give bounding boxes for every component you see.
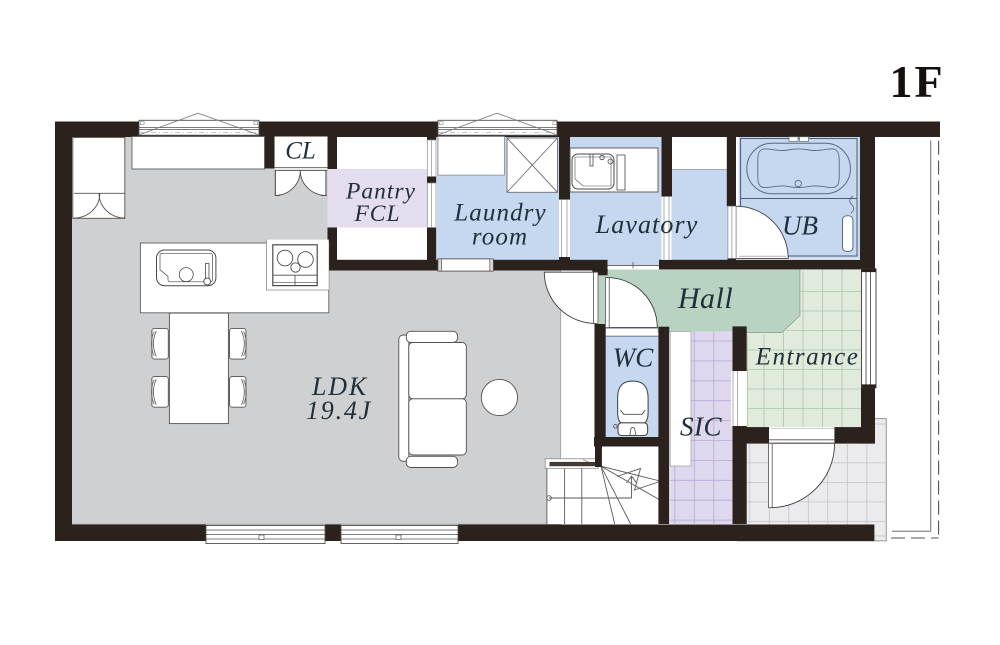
svg-text:WC: WC xyxy=(613,343,654,373)
svg-text:1F: 1F xyxy=(889,56,944,107)
svg-text:UB: UB xyxy=(782,211,818,241)
svg-text:Hall: Hall xyxy=(677,282,733,315)
svg-text:FCL: FCL xyxy=(353,201,400,227)
svg-text:Lavatory: Lavatory xyxy=(595,210,699,239)
svg-text:19.4J: 19.4J xyxy=(306,396,372,425)
svg-text:room: room xyxy=(472,224,528,251)
svg-text:Laundry: Laundry xyxy=(453,200,546,227)
svg-text:Entrance: Entrance xyxy=(755,344,860,371)
svg-text:SIC: SIC xyxy=(680,412,722,442)
svg-text:CL: CL xyxy=(285,138,316,165)
